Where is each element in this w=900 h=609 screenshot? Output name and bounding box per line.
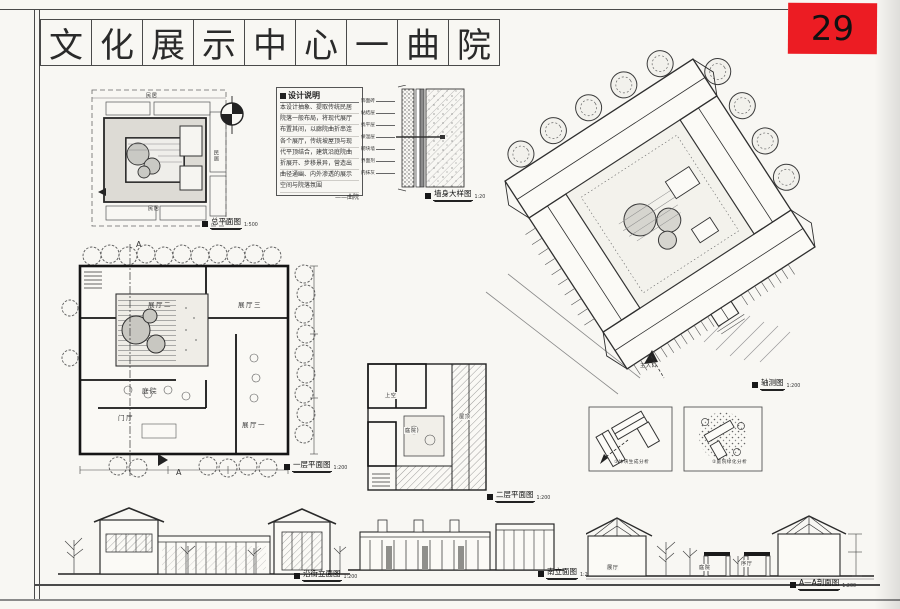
presentation-sheet: 文 化 展 示 中 心 一 曲 院 29 xyxy=(0,0,900,609)
axonometric-drawing xyxy=(468,42,846,398)
design-notes-line: 布置其间，以廊院曲折串连 xyxy=(280,125,359,136)
caption-marker-icon xyxy=(790,582,796,588)
caption-scale: 1:500 xyxy=(244,223,258,228)
plan1-section-mark-top: A xyxy=(136,240,143,249)
design-notes-line: 本设计抽象、提取传统民居 xyxy=(280,103,359,114)
plan1-lobby-label: 门厅 xyxy=(118,412,134,422)
design-notes-heading: 设计说明 xyxy=(280,90,359,103)
site-context-label: 民居 xyxy=(148,205,159,212)
caption-scale: 1:200 xyxy=(787,384,801,389)
caption-marker-icon xyxy=(284,464,290,470)
callout-label: 保温层 xyxy=(361,134,375,140)
leader-line xyxy=(376,173,395,174)
leader-line xyxy=(376,137,395,138)
second-floor-plan-drawing xyxy=(356,356,500,502)
leader-line xyxy=(376,149,395,150)
callout-label: 找平层 xyxy=(361,122,375,128)
caption-scale: 1:200 xyxy=(334,466,348,471)
analysis2-caption: ②庭院绿化分析 xyxy=(712,459,747,465)
frame-top-line xyxy=(0,9,788,10)
caption-label: 沿街立面图 xyxy=(302,568,342,581)
design-notes-line: 代平顶结合，建筑沿庭院曲 xyxy=(280,148,359,159)
site-context-label: 民居 xyxy=(213,150,220,161)
caption-site-plan: 总平面图 1:500 xyxy=(202,216,258,229)
leader-line xyxy=(376,125,395,126)
callout-label: 砌块墙 xyxy=(361,146,375,152)
wall-detail-callouts: 饰面砖 黏结层 找平层 保温层 砌块墙 界面剂 内抹灰 xyxy=(361,95,395,179)
frame-left-line-inner xyxy=(39,9,40,601)
caption-marker-icon xyxy=(752,382,758,388)
design-notes-signature: ——曲院 xyxy=(280,193,359,203)
design-notes-line: 曲径通幽、内外渗透的展示 xyxy=(280,170,359,181)
caption-section: A—A剖面图 1:200 xyxy=(790,577,856,590)
callout-label: 饰面砖 xyxy=(361,98,375,104)
plan1-court-label: 庭院 xyxy=(142,385,158,395)
leader-line xyxy=(376,161,395,162)
caption-marker-icon xyxy=(280,93,286,99)
caption-marker-icon xyxy=(294,573,300,579)
first-floor-plan-drawing xyxy=(58,238,324,486)
south-elevation-drawing xyxy=(348,512,564,580)
title-char: 心 xyxy=(296,20,347,65)
caption-scale: 1:200 xyxy=(842,584,856,589)
section-mid-label: 庭院 xyxy=(698,564,711,571)
caption-marker-icon xyxy=(487,494,493,500)
callout-label: 内抹灰 xyxy=(361,170,375,176)
caption-marker-icon xyxy=(538,571,544,577)
caption-label: 轴测图 xyxy=(760,377,785,390)
plan2-void-label: 上空 xyxy=(384,392,397,399)
axon-entrance-label: 主入口 xyxy=(640,362,657,369)
title-char: 曲 xyxy=(398,20,449,65)
sheet-title: 文 化 展 示 中 心 一 曲 院 xyxy=(40,19,500,66)
caption-label: 总平面图 xyxy=(210,216,242,229)
design-notes-line: 各个展厅，传统坡屋顶与现 xyxy=(280,137,359,148)
caption-scale: 1:200 xyxy=(537,496,551,501)
caption-axon: 轴测图 1:200 xyxy=(752,377,800,390)
frame-bottom-line-outer xyxy=(0,599,900,601)
title-char: 中 xyxy=(245,20,296,65)
caption-plan1: 一层平面图 1:200 xyxy=(284,459,347,472)
design-notes-title: 设计说明 xyxy=(288,90,320,101)
caption-marker-icon xyxy=(425,193,431,199)
caption-label: 一层平面图 xyxy=(292,459,332,472)
caption-marker-icon xyxy=(202,221,208,227)
plan1-section-mark-bottom: A xyxy=(176,468,183,477)
design-notes-line: 院落一般布局，将现代展厅 xyxy=(280,114,359,125)
caption-label: 南立面图 xyxy=(546,566,578,579)
plan1-hall3-label: 展厅三 xyxy=(238,299,262,309)
callout-label: 界面剂 xyxy=(361,158,375,164)
north-arrow-icon xyxy=(216,96,248,134)
section-left-label: 展厅 xyxy=(606,564,619,571)
leader-line xyxy=(376,101,395,102)
plan1-hall2-label: 展厅二 xyxy=(148,299,172,309)
analysis1-caption: ①体块生成分析 xyxy=(614,459,649,465)
caption-plan2: 二层平面图 1:200 xyxy=(487,489,550,502)
title-char: 一 xyxy=(347,20,398,65)
title-char: 展 xyxy=(143,20,194,65)
plan2-court-label: 庭院 xyxy=(404,427,417,434)
caption-label: 墙身大样图 xyxy=(433,188,473,201)
caption-label: A—A剖面图 xyxy=(798,577,840,590)
section-right-label: 序厅 xyxy=(740,560,753,567)
title-char: 化 xyxy=(92,20,143,65)
wall-detail-drawing xyxy=(396,85,468,193)
design-notes-panel: 设计说明 本设计抽象、提取传统民居 院落一般布局，将现代展厅 布置其间，以廊院曲… xyxy=(276,87,363,196)
plan2-roof-label: 屋顶 xyxy=(458,413,471,420)
callout-label: 黏结层 xyxy=(361,110,375,116)
site-context-label: 民居 xyxy=(146,92,157,99)
design-notes-line: 折展开、步移景异，营造出 xyxy=(280,159,359,170)
title-char: 示 xyxy=(194,20,245,65)
caption-label: 二层平面图 xyxy=(495,489,535,502)
title-char: 文 xyxy=(41,20,92,65)
design-notes-line: 空间与院落氛围 xyxy=(280,181,359,192)
plan1-hall1-label: 展厅一 xyxy=(242,419,266,429)
frame-left-line-outer xyxy=(34,9,35,601)
leader-line xyxy=(376,113,395,114)
